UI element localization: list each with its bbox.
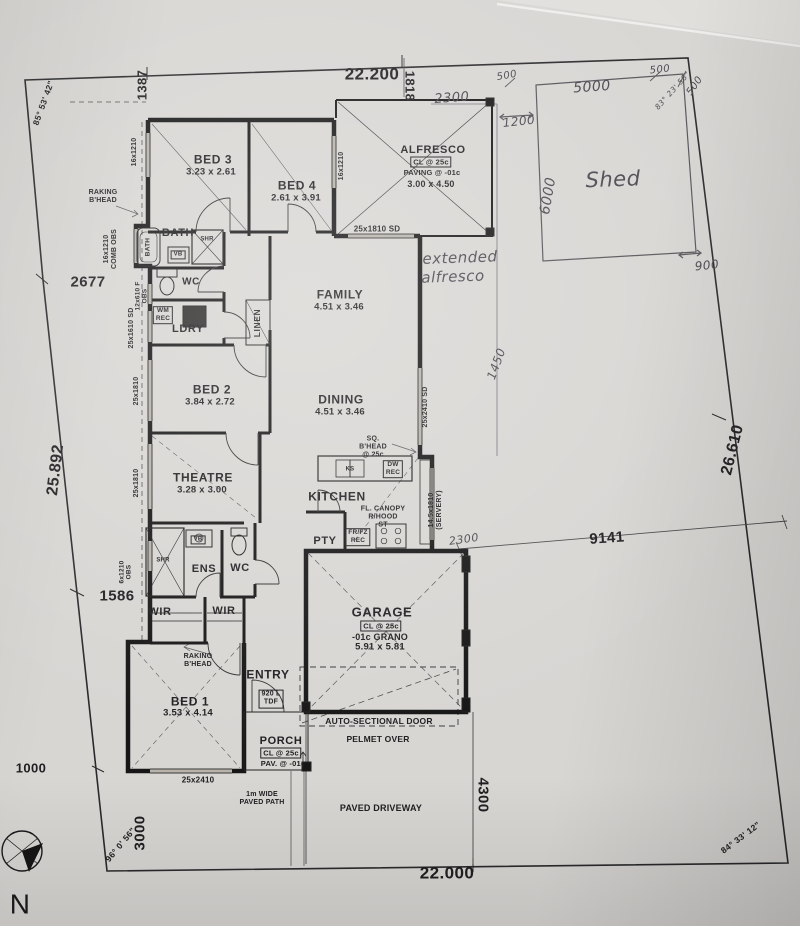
room-wc-2: WC <box>230 562 250 574</box>
compass-icon <box>2 831 43 872</box>
size-bed2: 3.84 x 2.72 <box>185 398 235 409</box>
room-bed2: BED 2 <box>193 383 231 396</box>
room-wc-1: WC <box>182 276 200 287</box>
fixture-shr-2: SHR <box>156 558 169 565</box>
dim-1387: 1387 <box>136 70 151 101</box>
note-garage-cl: CL @ 25c <box>360 621 401 632</box>
fixture-shr-1: SHR <box>200 237 213 244</box>
dim-1586: 1586 <box>100 589 135 606</box>
room-family: FAMILY <box>317 288 364 301</box>
room-bed4: BED 4 <box>278 179 316 192</box>
compass-n: N <box>10 888 30 919</box>
fixture-vb-1: VB <box>171 250 186 259</box>
doors <box>196 198 340 712</box>
room-bed3: BED 3 <box>194 153 232 166</box>
paper-edge <box>497 0 800 46</box>
room-garage: GARAGE <box>352 606 413 621</box>
fixture-wm-rec: WM REC <box>153 306 173 324</box>
fixture-frfz: FR/FZ REC <box>345 528 370 546</box>
win-ldry: 25x1610 SD <box>128 308 136 349</box>
win-family-sd: 25x1810 SD <box>354 226 400 235</box>
hand-shed: Shed <box>585 167 641 192</box>
room-ens: ENS <box>192 563 216 575</box>
room-porch: PORCH <box>260 735 303 747</box>
size-bed3: 3.23 x 2.61 <box>186 168 236 179</box>
win-ens-obs: 6x1210 OBS <box>119 561 134 584</box>
hand-extended: extended <box>422 248 498 267</box>
size-theatre: 3.28 x 3.00 <box>177 486 227 497</box>
win-servery: 14.5x1810 (SERVERY) <box>428 490 444 530</box>
note-sq-bhead: SQ. B'HEAD @ 25c <box>359 435 387 458</box>
dim-22-000: 22.000 <box>420 863 474 882</box>
win-bed4: 16x1210 <box>338 152 346 181</box>
room-linen: LINEN <box>253 309 263 338</box>
room-kitchen: KITCHEN <box>308 490 366 503</box>
note-canopy: FL. CANOPY R/HOOD ST <box>361 505 405 528</box>
note-porch-pav: PAV. @ -01c <box>261 760 305 768</box>
dim-9141: 9141 <box>589 529 625 548</box>
note-garage-grano: -01c GRANO <box>352 632 408 642</box>
note-alfresco-paving: PAVING @ -01c <box>404 169 461 177</box>
note-porch-cl: CL @ 25c <box>260 748 301 759</box>
win-dining-sd: 25x2410 SD <box>422 387 430 428</box>
fixture-vb-2: VB <box>191 535 206 544</box>
size-dining: 4.51 x 3.46 <box>315 408 365 419</box>
size-garage: 5.91 x 5.81 <box>355 643 405 654</box>
size-bed4: 2.61 x 3.91 <box>271 194 321 205</box>
fixture-ks: KS <box>346 467 355 474</box>
fixture-dw-rec: DW REC <box>383 460 403 478</box>
room-dining: DINING <box>318 393 364 406</box>
note-raking-2: RAKING B'HEAD <box>184 653 213 669</box>
note-raking-1: RAKING B'HEAD <box>89 189 118 205</box>
floor-plan-photo: 138722.200181885° 53' 42"267725.89215861… <box>0 0 800 926</box>
site-boundary <box>25 55 788 872</box>
hand-5000: 5000 <box>573 79 612 97</box>
note-paved-path: 1m WIDE PAVED PATH <box>239 791 284 807</box>
size-bed1: 3.53 x 4.14 <box>163 709 213 720</box>
hand-2300-top: 2300 <box>434 91 470 108</box>
dim-1818: 1818 <box>402 71 417 102</box>
room-theatre: THEATRE <box>173 471 233 484</box>
win-f-obs: 12x610 F OBS <box>135 281 150 310</box>
dim-22-200: 22.200 <box>345 64 399 83</box>
room-entry: ENTRY <box>246 668 289 681</box>
win-comb-obs: 16x1210 COMB OBS <box>103 229 119 269</box>
fixture-tdf: 920 L TDF <box>259 690 284 709</box>
win-bed1: 25x2410 <box>182 777 215 786</box>
dim-4300: 4300 <box>474 778 491 813</box>
dim-1000: 1000 <box>16 762 47 777</box>
fixture-bath-label: BATH <box>144 238 151 256</box>
room-wir-2: WIR <box>212 605 235 617</box>
size-alfresco: 3.00 x 4.50 <box>407 179 454 189</box>
room-wir-1: WIR <box>148 606 171 618</box>
note-pelmet: PELMET OVER <box>346 735 409 745</box>
exterior-walls <box>128 120 466 771</box>
room-ldry: LDRY <box>172 323 204 335</box>
room-alfresco: ALFRESCO <box>400 144 465 156</box>
hand-900: 900 <box>694 258 720 274</box>
note-alfresco-cl: CL @ 25c <box>410 157 451 168</box>
win-bed2: 25x1810 <box>133 377 141 406</box>
hand-500-right: 500 <box>649 63 671 76</box>
win-theatre: 25x1810 <box>133 469 141 498</box>
dim-2677: 2677 <box>71 275 106 292</box>
room-pty: PTY <box>313 535 336 547</box>
note-driveway: PAVED DRIVEWAY <box>340 803 422 813</box>
note-auto-door: AUTO-SECTIONAL DOOR <box>325 717 432 727</box>
win-bed3: 16x1210 <box>131 138 139 167</box>
size-family: 4.51 x 3.46 <box>314 303 364 314</box>
room-bath: BATH <box>162 227 194 239</box>
hand-alfresco: alfresco <box>421 268 485 287</box>
